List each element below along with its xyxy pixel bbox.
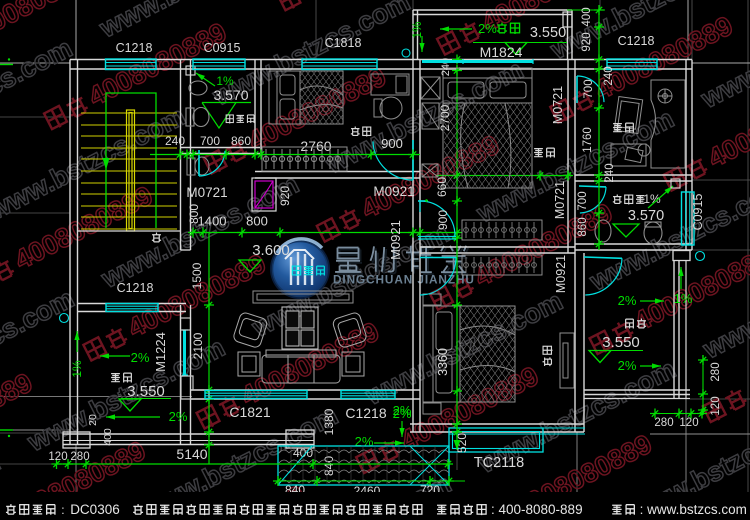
svg-text:: www.bstzcs.com: : www.bstzcs.com bbox=[640, 502, 747, 517]
svg-text:1%: 1% bbox=[70, 360, 84, 378]
svg-text:5140: 5140 bbox=[176, 446, 207, 462]
svg-text:C1218: C1218 bbox=[116, 41, 153, 55]
svg-text:C0915: C0915 bbox=[691, 194, 705, 231]
svg-text:M0721: M0721 bbox=[186, 185, 227, 200]
svg-text:1%: 1% bbox=[412, 22, 424, 39]
svg-text:M0721: M0721 bbox=[551, 86, 565, 124]
svg-text:400: 400 bbox=[102, 428, 114, 446]
svg-text:3.550: 3.550 bbox=[127, 383, 165, 400]
svg-text:C1218: C1218 bbox=[345, 405, 386, 421]
svg-text:1500: 1500 bbox=[190, 262, 204, 289]
svg-text:660: 660 bbox=[435, 177, 449, 197]
svg-text:800: 800 bbox=[246, 214, 268, 229]
svg-text:920: 920 bbox=[581, 32, 593, 51]
svg-text:2%: 2% bbox=[478, 21, 497, 36]
svg-text:2%: 2% bbox=[355, 434, 374, 449]
svg-text:860: 860 bbox=[577, 217, 589, 236]
svg-text::: : bbox=[61, 503, 64, 517]
svg-text:M1224: M1224 bbox=[153, 332, 168, 372]
svg-text:1400: 1400 bbox=[198, 214, 227, 229]
svg-text:920: 920 bbox=[278, 186, 292, 206]
svg-text:M0921: M0921 bbox=[554, 255, 568, 293]
svg-text:3.550: 3.550 bbox=[602, 334, 640, 351]
svg-text:2%: 2% bbox=[618, 358, 637, 373]
svg-text:2%: 2% bbox=[131, 350, 150, 365]
svg-text:20: 20 bbox=[87, 414, 99, 426]
svg-text:2760: 2760 bbox=[300, 138, 331, 154]
svg-text:C1218: C1218 bbox=[618, 34, 655, 48]
svg-text:C1821: C1821 bbox=[229, 404, 270, 420]
svg-text:700: 700 bbox=[577, 191, 589, 210]
svg-text:2%: 2% bbox=[393, 406, 412, 421]
svg-text:M0921: M0921 bbox=[373, 184, 414, 199]
svg-text:TC2118: TC2118 bbox=[474, 455, 525, 471]
svg-text:3.550: 3.550 bbox=[530, 25, 566, 41]
svg-text:M0721: M0721 bbox=[553, 181, 567, 219]
svg-text:280: 280 bbox=[710, 362, 722, 381]
svg-text:280: 280 bbox=[70, 451, 89, 463]
svg-text:: 400-8080-889: : 400-8080-889 bbox=[491, 502, 583, 517]
svg-text:C0915: C0915 bbox=[204, 41, 241, 55]
svg-text:3.570: 3.570 bbox=[213, 87, 248, 103]
svg-text:860: 860 bbox=[231, 134, 251, 148]
svg-text:M0921: M0921 bbox=[388, 220, 403, 260]
svg-text:2%: 2% bbox=[618, 293, 637, 308]
svg-text:C1818: C1818 bbox=[325, 36, 362, 50]
svg-text:240: 240 bbox=[603, 66, 615, 85]
svg-text:900: 900 bbox=[436, 210, 450, 230]
svg-text:120: 120 bbox=[48, 451, 67, 463]
svg-text:120: 120 bbox=[710, 396, 722, 415]
svg-text:400: 400 bbox=[581, 7, 593, 26]
svg-text:700: 700 bbox=[583, 79, 595, 98]
svg-text:2700: 2700 bbox=[438, 104, 452, 131]
svg-text:3360: 3360 bbox=[436, 348, 450, 376]
svg-text:2100: 2100 bbox=[191, 332, 205, 359]
svg-text:280: 280 bbox=[654, 417, 673, 429]
svg-text:DC0306: DC0306 bbox=[70, 502, 120, 517]
svg-text:DINGCHUAN JIANZHU: DINGCHUAN JIANZHU bbox=[333, 273, 475, 287]
svg-text:1380: 1380 bbox=[322, 408, 336, 435]
svg-text:C1218: C1218 bbox=[117, 281, 154, 295]
svg-text:240: 240 bbox=[604, 163, 616, 182]
svg-text:240: 240 bbox=[165, 134, 185, 148]
svg-text:900: 900 bbox=[381, 136, 403, 151]
svg-text:1%: 1% bbox=[216, 74, 234, 88]
svg-text:2%: 2% bbox=[169, 409, 188, 424]
svg-text:M1824: M1824 bbox=[480, 44, 523, 60]
svg-text:1%: 1% bbox=[674, 291, 693, 306]
svg-text:120: 120 bbox=[679, 417, 698, 429]
svg-text:1760: 1760 bbox=[582, 127, 594, 153]
svg-text:3.600: 3.600 bbox=[252, 242, 290, 259]
svg-text:700: 700 bbox=[200, 134, 220, 148]
